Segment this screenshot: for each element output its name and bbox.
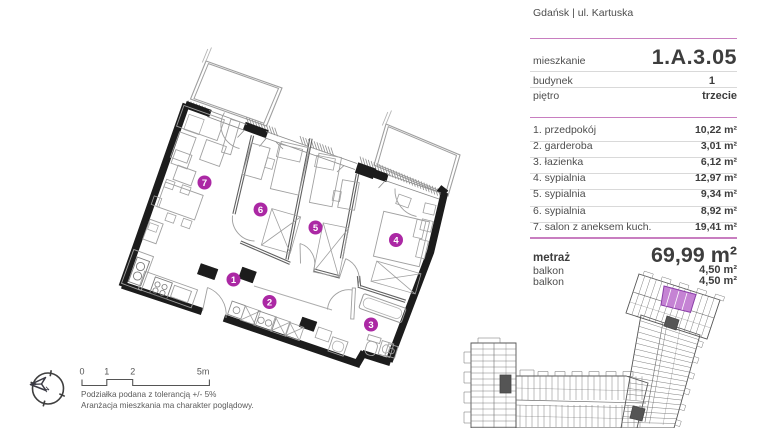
svg-text:3: 3 [368,320,373,331]
svg-text:4: 4 [393,235,399,246]
svg-text:0: 0 [79,367,84,377]
svg-text:1: 1 [104,367,109,377]
svg-text:N: N [43,386,51,394]
svg-text:7: 7 [202,178,207,189]
svg-text:2: 2 [130,367,135,377]
svg-text:5: 5 [313,223,319,234]
svg-text:1: 1 [231,275,237,286]
svg-text:5m: 5m [197,367,210,377]
svg-text:6: 6 [258,205,263,216]
svg-text:2: 2 [267,297,272,308]
